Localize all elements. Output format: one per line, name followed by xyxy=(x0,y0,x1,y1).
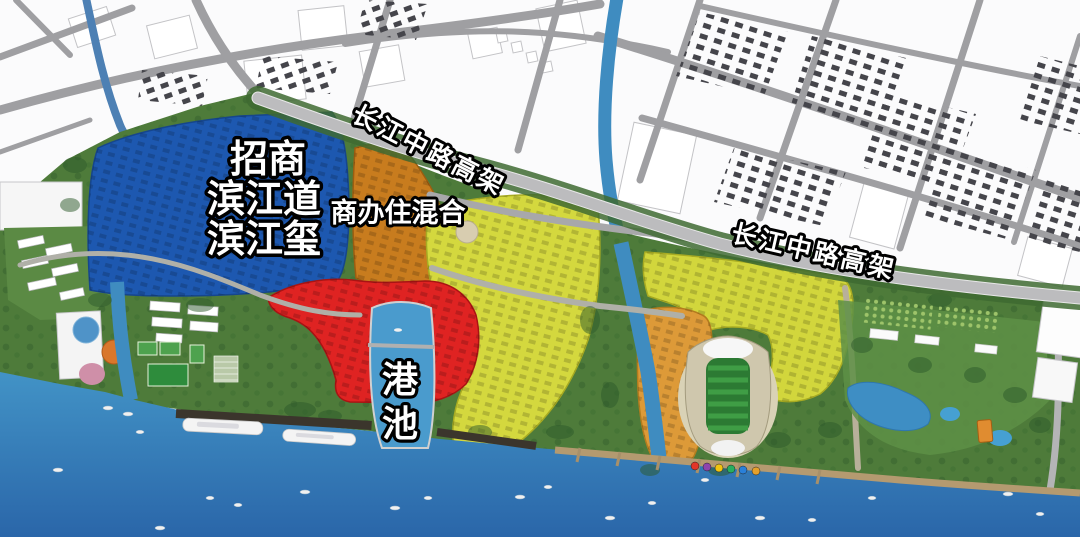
label-harbor-char2: 池 xyxy=(382,404,418,445)
label-zone-mixed: 商办住混合 xyxy=(331,197,466,229)
decorative-pool xyxy=(73,317,99,343)
map-canvas: 招商 滨江道 滨江玺 商办住混合 长江中路高架 长江中路高架 港 池 xyxy=(0,0,1080,537)
stadium-canopy-south xyxy=(711,440,745,456)
harbor-bridge xyxy=(368,345,434,347)
pink-garden-feature xyxy=(79,363,105,385)
greenhouses xyxy=(214,356,238,382)
label-harbor-char1: 港 xyxy=(382,360,419,401)
convention-hall-south xyxy=(1032,357,1077,402)
stadium xyxy=(678,336,778,458)
urban-master-plan-map: 招商 滨江道 滨江玺 商办住混合 长江中路高架 长江中路高架 港 池 xyxy=(0,0,1080,537)
label-zone-blue-line3: 滨江玺 xyxy=(207,217,321,261)
pool-small xyxy=(940,407,960,421)
label-zone-blue-line1: 招商 xyxy=(230,137,306,181)
label-zone-blue-line2: 滨江道 xyxy=(207,177,321,221)
stadium-canopy-north xyxy=(703,338,753,360)
orange-tower xyxy=(977,419,993,442)
